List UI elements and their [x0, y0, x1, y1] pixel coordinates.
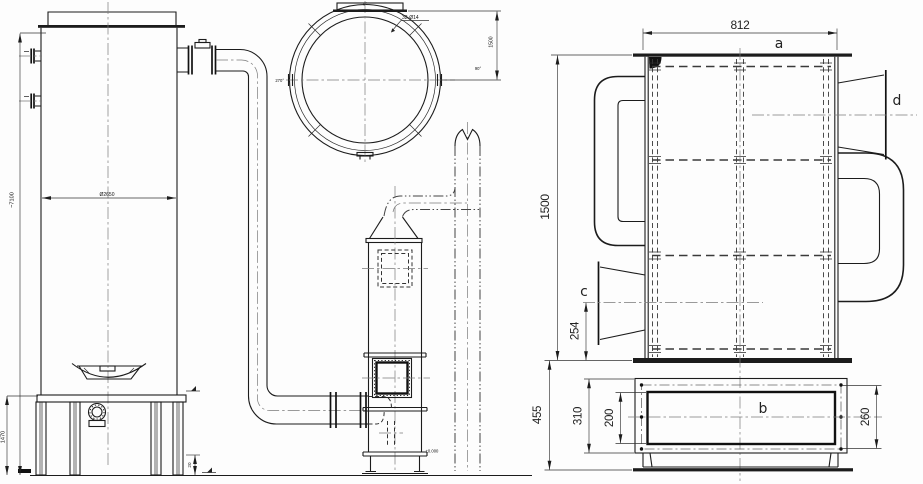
label-b: b — [759, 401, 768, 417]
top-plate — [633, 54, 852, 57]
pipe-flanges — [331, 392, 367, 428]
tank-shell — [41, 28, 177, 395]
bottom-box — [628, 379, 882, 472]
technical-drawing: ~7100 1470 Ø2650 20 — [0, 0, 923, 484]
label-a: a — [775, 36, 784, 52]
exchanger-dimensions: 812 1500 455 254 310 200 260 a b c d — [532, 18, 901, 470]
left-return-bend — [595, 77, 646, 246]
tank-outlet-piping — [177, 40, 368, 429]
hidden-tubes — [653, 59, 829, 357]
bolt-callout: 32-Ø14 — [402, 15, 419, 21]
tank-side-nozzles — [19, 49, 42, 109]
dim-width: 812 — [730, 18, 750, 32]
dim-base-clearance: 20 — [187, 462, 192, 468]
dim-support-height: 1470 — [1, 431, 7, 443]
dim-flange-height: 310 — [573, 407, 585, 425]
tank-lid — [48, 12, 176, 25]
angle-top-label: 0° — [363, 2, 367, 7]
exchanger-elevation-view: 812 1500 455 254 310 200 260 a b c d — [532, 18, 917, 481]
angle-left-label: 270° — [275, 78, 284, 83]
tank-top-flange — [38, 25, 185, 28]
hidden-baffles — [652, 67, 831, 350]
dim-top-view-radius: 1500 — [489, 36, 495, 47]
dim-body-height: 1500 — [538, 194, 552, 220]
vessel-cone — [370, 217, 419, 239]
dim-tank-diameter: Ø2650 — [99, 192, 114, 198]
label-d: d — [893, 93, 902, 109]
right-return-bend — [838, 153, 904, 302]
dim-bolt-height: 260 — [860, 408, 872, 426]
dim-opening-height: 200 — [604, 409, 616, 427]
scrubber-vessel: ±0.000 — [362, 186, 439, 474]
dim-nozzle-offset: 254 — [570, 321, 582, 340]
access-door — [362, 359, 430, 398]
level-mark: ±0.000 — [426, 449, 439, 454]
exchanger-shell — [645, 57, 838, 358]
technical-drawing-canvas: ~7100 1470 Ø2650 20 — [0, 0, 923, 484]
angle-right-label: 90° — [475, 66, 482, 71]
nozzle-c — [583, 262, 763, 346]
label-c: c — [580, 284, 588, 300]
dim-base-height: 455 — [532, 406, 544, 424]
elevation-mark — [191, 386, 212, 473]
stack-pipe — [384, 122, 480, 471]
bottom-tube-sheet — [633, 358, 852, 363]
dim-overall-height: ~7100 — [10, 192, 16, 208]
